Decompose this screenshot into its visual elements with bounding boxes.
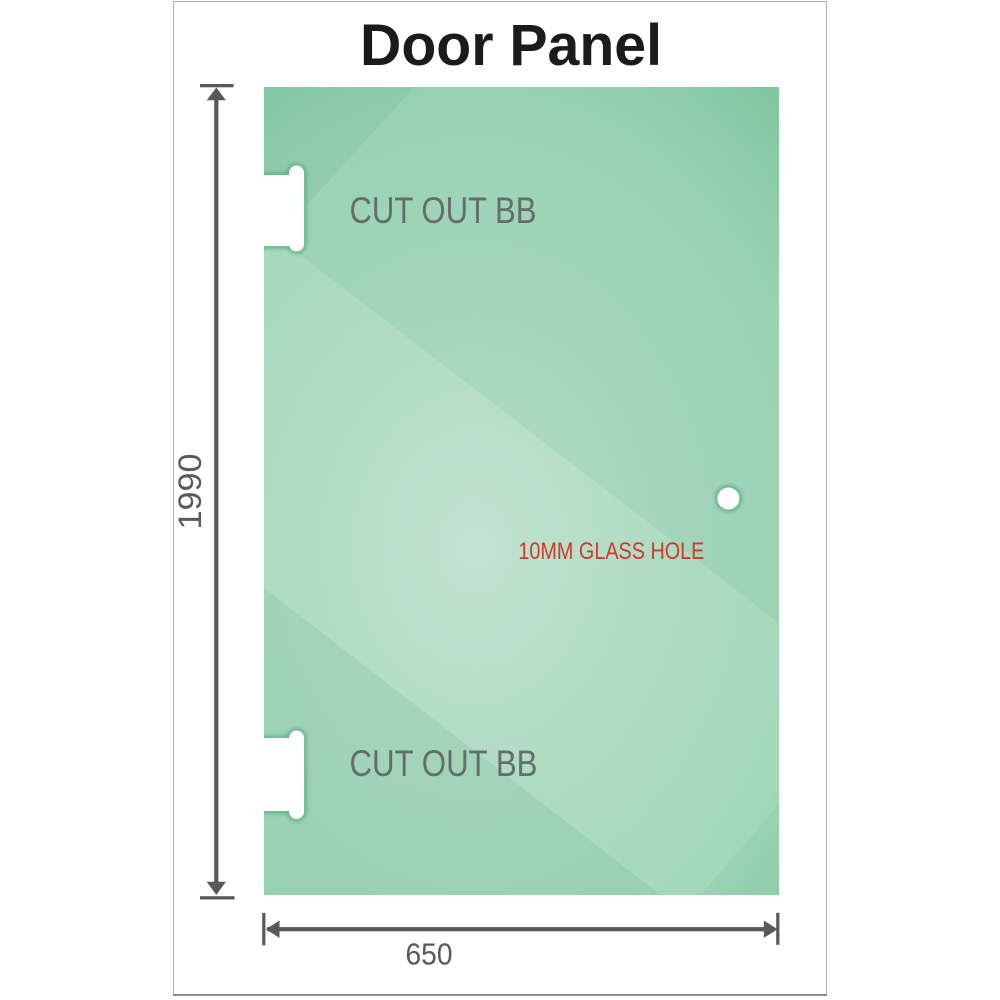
svg-text:1990: 1990 — [172, 454, 208, 530]
svg-text:CUT OUT BB: CUT OUT BB — [350, 743, 538, 784]
svg-text:650: 650 — [406, 938, 453, 972]
svg-text:Door Panel: Door Panel — [360, 13, 662, 78]
svg-text:10MM GLASS HOLE: 10MM GLASS HOLE — [518, 538, 704, 565]
svg-text:CUT OUT BB: CUT OUT BB — [350, 190, 537, 231]
